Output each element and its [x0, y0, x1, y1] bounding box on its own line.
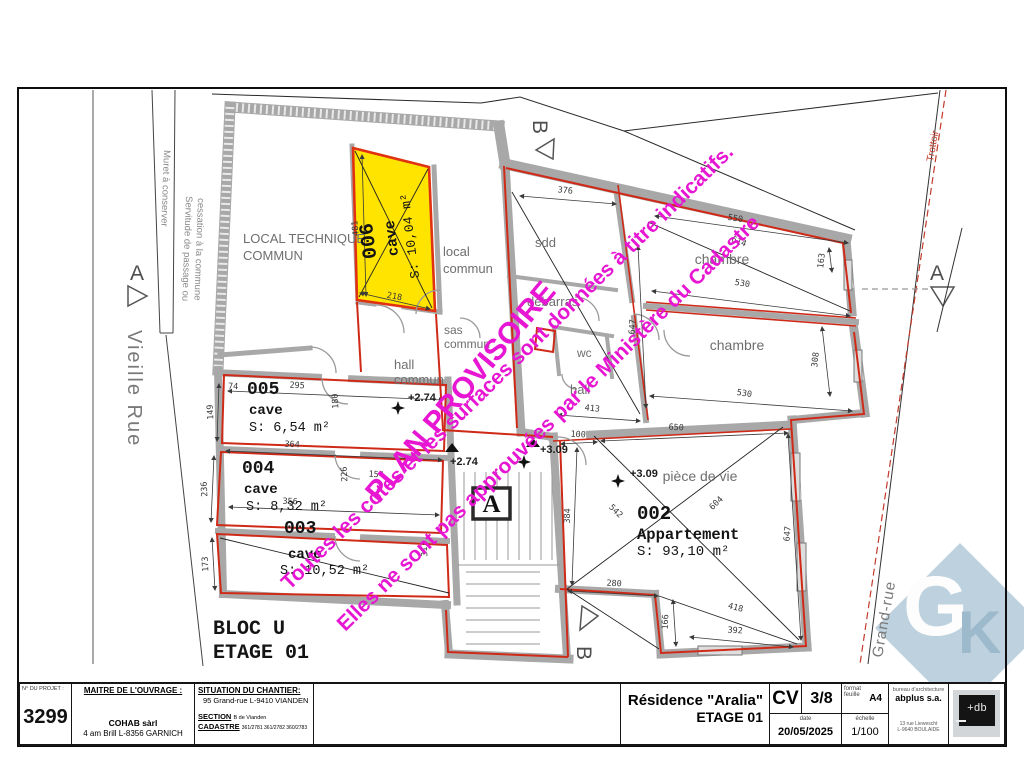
- cadastre-label: CADASTRE: [198, 722, 240, 731]
- note-muret: Muret à conserver: [158, 150, 172, 227]
- project-number: 3299: [20, 706, 71, 729]
- room-label-local-technique: COMMUN: [243, 248, 303, 263]
- level-label: +2.74: [450, 456, 479, 468]
- title-cell-logo: +db: [949, 684, 1004, 744]
- survey-star-icon: [391, 401, 405, 415]
- bloc-label: BLOC U: [213, 618, 285, 641]
- dim-label: 100: [570, 429, 586, 440]
- drawing-sheet: G K: [0, 0, 1024, 768]
- level-triangle-icon: [445, 443, 459, 452]
- room-label-cave-003: 003: [284, 519, 316, 539]
- note-servitude: Servitude de passage ou: [179, 196, 194, 301]
- section-triangle-icon: [128, 286, 147, 306]
- room-label-apt-002: 002: [637, 503, 671, 525]
- owner-name: COHAB sàrl: [72, 718, 194, 729]
- section-marker-a-right: A: [930, 262, 944, 285]
- dim-label: 308: [810, 352, 822, 368]
- room-label-local-commun: local: [443, 244, 470, 259]
- section-triangle-icon: [580, 606, 598, 630]
- format-value: A4: [869, 693, 882, 704]
- survey-star-icon: [611, 474, 625, 488]
- title-cell-project: N° DU PROJET : 3299: [20, 684, 72, 744]
- section-label: SECTION: [198, 712, 231, 721]
- dim-label: 74: [228, 382, 239, 393]
- dim-label: 392: [727, 625, 743, 636]
- svg-text:006: 006: [356, 222, 383, 261]
- dim-label: 149: [206, 404, 217, 420]
- dim-label: 295: [289, 381, 305, 392]
- site-labels: Vieille Rue Muret à conserver Servitude …: [123, 129, 942, 665]
- cadastre-value: 361/2781 361/2782 360/2783: [242, 725, 307, 731]
- room-label-cave-004: 004: [242, 459, 275, 479]
- dim-label: 530: [734, 278, 751, 290]
- date-label: date: [770, 714, 841, 722]
- section-marker-b-bottom: B: [572, 646, 595, 660]
- dim-label: 647: [782, 526, 793, 542]
- title-cell-format: format feuille A4: [842, 684, 889, 714]
- sheet-type: CV: [770, 688, 801, 710]
- room-label-local-commun: commun: [443, 261, 493, 276]
- dim-label: 542: [606, 503, 624, 521]
- dim-label: 166: [661, 614, 672, 630]
- dim-label: 173: [201, 556, 212, 572]
- room-label-apt-002: S: 93,10 m²: [637, 544, 729, 560]
- dim-label: 376: [557, 185, 573, 197]
- room-label-sdd: sdd: [535, 235, 556, 250]
- format-label: format: [842, 684, 888, 692]
- room-label-cave-005: S: 6,54 m²: [249, 421, 330, 436]
- title-cell-site: SITUATION DU CHANTIER: 95 Grand-rue L-94…: [195, 684, 314, 744]
- room-label-wc: wc: [576, 346, 592, 360]
- room-label-cave-004: S: 8,32 m²: [246, 500, 327, 515]
- street-label-trottoir: Trottoir: [925, 129, 941, 162]
- title-cell-scale: échelle 1/100: [842, 714, 889, 744]
- firm-name: abplus s.a.: [889, 693, 948, 703]
- room-label-local-technique: LOCAL TECHNIQUE: [243, 231, 365, 246]
- scale-value: 1/100: [842, 726, 888, 738]
- title-cell-sheet-number: 3/8: [802, 684, 842, 714]
- dim-label: 604: [708, 495, 726, 513]
- firm-address: L-9640 BOULAIDE: [889, 727, 948, 733]
- sheet-number: 3/8: [802, 690, 841, 708]
- room-label-cave-005: 005: [247, 380, 279, 400]
- street-label-vieille-rue: Vieille Rue: [123, 330, 145, 447]
- dim-label: 163: [816, 253, 828, 269]
- section-marker-a-left: A: [130, 262, 144, 285]
- floor-plan-canvas: A: [0, 0, 1024, 768]
- dim-label: 280: [606, 579, 622, 590]
- title-cell-date: date 20/05/2025: [770, 714, 842, 744]
- dim-label: 384: [563, 508, 574, 524]
- level-label: +3.09: [540, 444, 568, 456]
- site-address: 95 Grand-rue L-9410 VIANDEN: [203, 696, 313, 705]
- room-label-piece-de-vie: pièce de vie: [663, 468, 738, 484]
- section-triangle-icon: [536, 139, 554, 159]
- dim-label: 180: [331, 393, 342, 409]
- firm-label: bureau d'architecture: [889, 684, 948, 693]
- drawing-title: Résidence "Aralia": [621, 692, 763, 709]
- dim-label: 418: [727, 601, 744, 614]
- project-label: N° DU PROJET :: [20, 684, 71, 692]
- title-block: N° DU PROJET : 3299 MAITRE DE L'OUVRAGE …: [18, 682, 1006, 746]
- section-value: B de Vianden: [233, 715, 266, 721]
- firm-logo-tick: [956, 720, 966, 722]
- dim-label: 364: [284, 440, 300, 451]
- room-label-sas-commun: sas: [444, 323, 463, 337]
- dim-label: 236: [200, 481, 211, 497]
- room-label-cave-005: cave: [249, 403, 283, 419]
- room-label-hall-commun: commun: [394, 372, 444, 387]
- level-label: +3.09: [630, 468, 658, 480]
- scale-label: échelle: [842, 714, 888, 722]
- owner-label: MAITRE DE L'OUVRAGE :: [72, 684, 194, 696]
- site-label: SITUATION DU CHANTIER:: [198, 686, 301, 695]
- drawing-subtitle: ETAGE 01: [621, 709, 763, 725]
- owner-address: 4 am Brill L-8356 GARNICH: [72, 729, 194, 739]
- section-triangle-icon: [931, 287, 954, 306]
- title-cell-owner: MAITRE DE L'OUVRAGE : COHAB sàrl 4 am Br…: [72, 684, 195, 744]
- etage-label: ETAGE 01: [213, 642, 309, 665]
- title-cell-architect: bureau d'architecture abplus s.a. 13 rue…: [889, 684, 949, 744]
- section-marker-b-top: B: [528, 120, 551, 134]
- room-label-apt-002: Appartement: [637, 526, 739, 544]
- title-cell-drawing-title: Résidence "Aralia" ETAGE 01: [620, 684, 770, 744]
- room-label-cave-004: cave: [244, 482, 278, 498]
- room-label-hall-commun: hall: [394, 357, 414, 372]
- dim-label: 413: [584, 403, 600, 415]
- dim-label: 530: [736, 388, 753, 400]
- room-label-chambre-2: chambre: [710, 337, 765, 353]
- dim-label: 226: [340, 466, 351, 482]
- title-cell-sheet-type: CV: [770, 684, 802, 714]
- date-value: 20/05/2025: [770, 726, 841, 738]
- dim-label: 650: [668, 422, 684, 433]
